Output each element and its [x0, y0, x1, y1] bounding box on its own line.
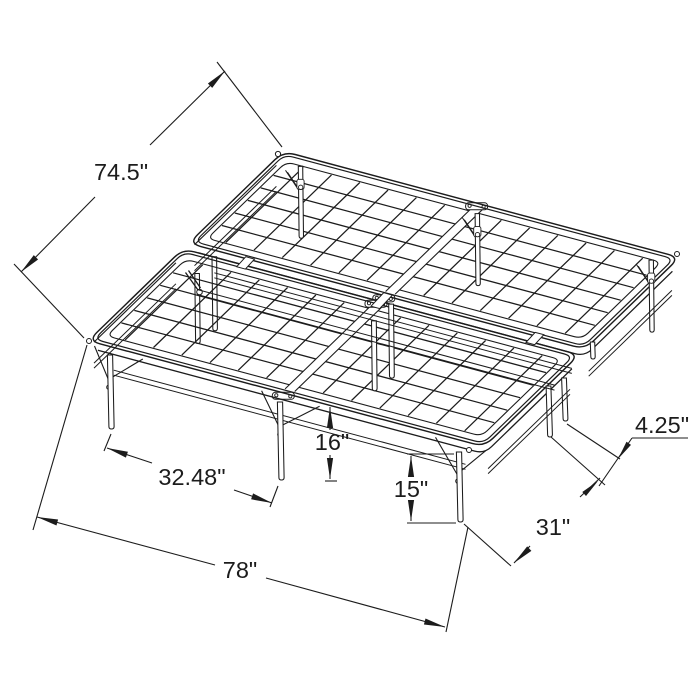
svg-text:32.48": 32.48"	[158, 464, 225, 490]
svg-text:74.5": 74.5"	[94, 159, 148, 185]
svg-text:4.25": 4.25"	[635, 412, 689, 438]
svg-text:15": 15"	[394, 476, 428, 502]
svg-text:16": 16"	[315, 429, 349, 455]
svg-text:78": 78"	[223, 557, 257, 583]
svg-text:31": 31"	[536, 514, 570, 540]
